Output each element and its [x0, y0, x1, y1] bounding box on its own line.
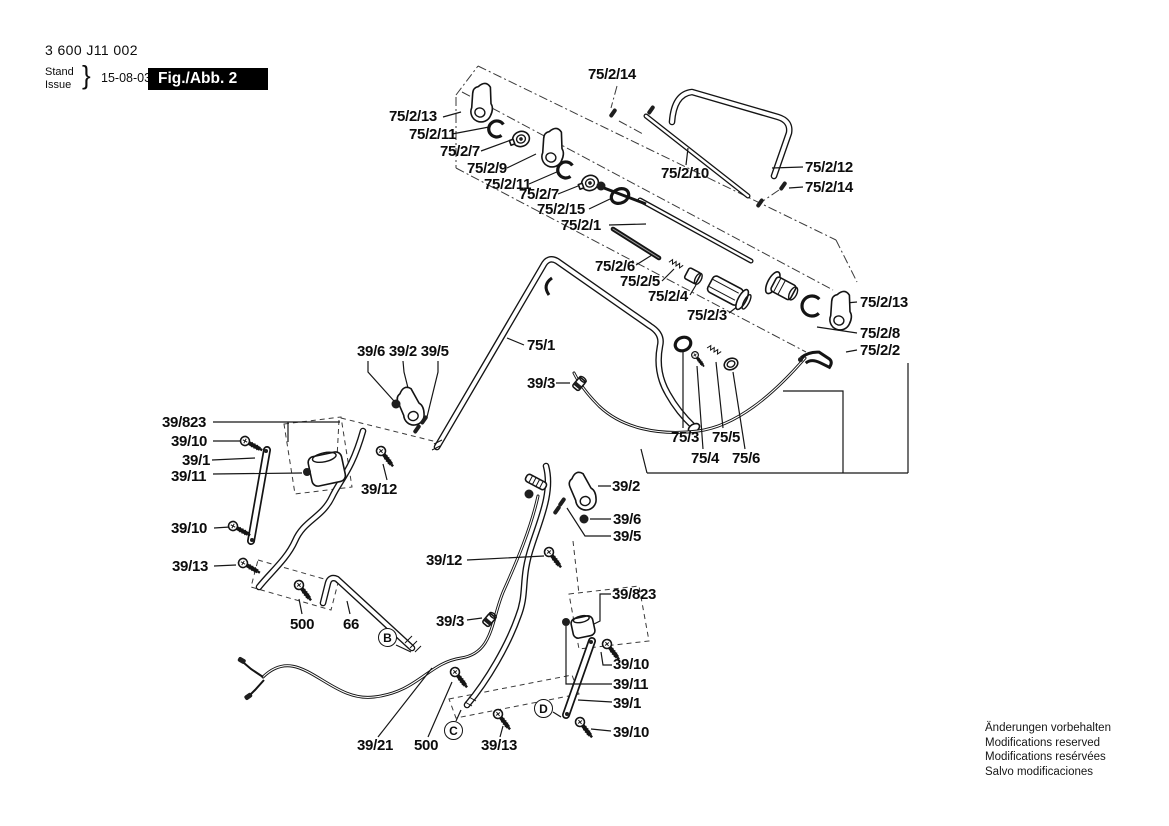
nut-75-2-7	[508, 129, 532, 150]
notice-line: Änderungen vorbehalten	[985, 721, 1111, 736]
stand-label: Stand	[45, 66, 74, 78]
part-label: 75/3	[671, 430, 699, 446]
part-label: 500	[290, 617, 314, 633]
part-label: 39/823	[612, 587, 656, 603]
nut-75-2-7b	[577, 173, 601, 194]
notice-line: Modifications resérvées	[985, 750, 1111, 765]
part-label: 75/2/4	[648, 289, 688, 305]
issue-date: 15-08-03	[101, 71, 151, 85]
cam-lever-75-2-13	[467, 81, 497, 124]
part-number: 3 600 J11 002	[45, 42, 138, 58]
clip-39-3-lower	[482, 611, 497, 627]
notice-line: Salvo modificaciones	[985, 765, 1111, 780]
part-label: 66	[343, 617, 359, 633]
part-label: 39/12	[361, 482, 397, 498]
grommet-block-left	[307, 449, 347, 487]
part-label: 39/1	[182, 453, 210, 469]
part-label: 75/2/14	[805, 180, 853, 196]
part-label: 39/10	[613, 725, 649, 741]
part-label: 500	[414, 738, 438, 754]
cables	[237, 347, 833, 700]
part-label: 39/11	[171, 469, 206, 485]
part-label: 75/2/2	[860, 343, 900, 359]
part-label: 75/2/14	[588, 67, 636, 83]
part-label: 75/1	[527, 338, 555, 354]
coupler	[763, 270, 802, 306]
part-label: 39/11	[613, 677, 648, 693]
part-label: 39/13	[172, 559, 208, 575]
part-label: 75/2/13	[860, 295, 908, 311]
part-label: 39/2	[612, 479, 640, 495]
cam-lever-75-2-13b	[826, 289, 856, 332]
grommet-block-right	[570, 614, 596, 639]
figure-number-box: Fig./Abb. 2	[148, 68, 268, 90]
part-label: 39/6 39/2 39/5	[357, 344, 449, 360]
issue-label: Issue	[45, 79, 71, 91]
clamp-75-2-8	[800, 294, 821, 317]
part-label: 75/2/12	[805, 160, 853, 176]
cap-75-6	[722, 356, 739, 372]
part-label: 75/2/7	[440, 144, 480, 160]
part-label: 39/3	[527, 376, 555, 392]
part-label: 39/10	[171, 434, 207, 450]
part-label: 75/2/3	[687, 308, 727, 324]
part-label: 75/2/8	[860, 326, 900, 342]
brace-glyph: }	[82, 60, 91, 91]
part-label: 39/21	[357, 738, 393, 754]
c-clip-75-2-11	[487, 119, 505, 138]
screw-75-4	[690, 350, 706, 368]
cable-adjuster	[524, 473, 547, 490]
grommet-75-3	[673, 335, 693, 354]
small-parts	[227, 81, 857, 740]
part-label: 39/13	[481, 738, 517, 754]
view-callout-d: D	[534, 699, 553, 718]
part-label: 75/2/15	[537, 202, 585, 218]
cam-lever-39-2-right	[567, 469, 599, 512]
washer-75-2-15	[609, 186, 631, 206]
part-label: 75/6	[732, 451, 760, 467]
part-label: 75/2/11	[409, 127, 456, 143]
part-label: 39/6	[613, 512, 641, 528]
part-label: 39/823	[162, 415, 206, 431]
modifications-notice: Änderungen vorbehalten Modifications res…	[985, 721, 1111, 779]
sleeve-75-2-4	[684, 267, 704, 285]
part-label: 75/2/10	[661, 166, 709, 182]
view-callout-b: B	[378, 628, 397, 647]
part-label: 39/3	[436, 614, 464, 630]
part-label: 75/2/1	[561, 218, 601, 234]
part-label: 75/5	[712, 430, 740, 446]
view-callout-c: C	[444, 721, 463, 740]
exploded-view-drawing	[0, 0, 1169, 826]
part-label: 75/2/9	[467, 161, 507, 177]
part-label: 75/4	[691, 451, 719, 467]
part-label: 39/1	[613, 696, 641, 712]
part-label: 39/10	[171, 521, 207, 537]
part-label: 39/10	[613, 657, 649, 673]
part-label: 39/5	[613, 529, 641, 545]
part-label: 75/2/13	[389, 109, 437, 125]
notice-line: Modifications reserved	[985, 736, 1111, 751]
parts-diagram-page: 3 600 J11 002 Stand Issue } 15-08-03 Fig…	[0, 0, 1169, 826]
part-label: 39/12	[426, 553, 462, 569]
